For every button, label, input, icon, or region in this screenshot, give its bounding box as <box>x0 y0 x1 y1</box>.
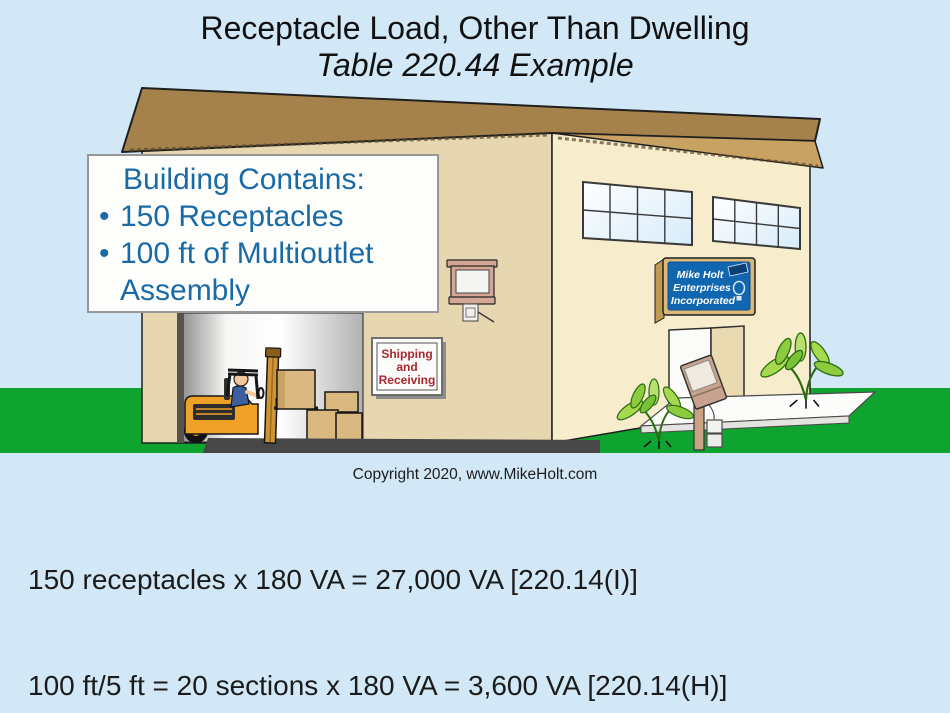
calculation-block: 150 receptacles x 180 VA = 27,000 VA [22… <box>28 492 910 713</box>
bullet-icon: • <box>99 235 120 309</box>
driver-torso <box>231 386 249 407</box>
driveway <box>203 438 600 453</box>
mast-cap <box>266 348 281 358</box>
page-subtitle: Table 220.44 Example <box>0 47 950 84</box>
building-contains-heading: Building Contains: <box>99 161 431 198</box>
small-box <box>707 434 722 447</box>
mike-holt-sign: Mike Holt Enterprises Incorporated <box>655 258 755 323</box>
title-block: Receptacle Load, Other Than Dwelling Tab… <box>0 10 950 84</box>
forklift-grill <box>193 404 235 420</box>
garage-jamb <box>177 313 184 443</box>
list-item: • 150 Receptacles <box>99 198 431 235</box>
building-contains-box: Building Contains: • 150 Receptacles • 1… <box>87 154 439 313</box>
slide: Mike Holt Enterprises Incorporated Ship <box>0 0 950 713</box>
lamp-bottom <box>449 297 495 304</box>
calc-line-multioutlet: 100 ft/5 ft = 20 sections x 180 VA = 3,6… <box>28 668 910 703</box>
shipping-sign-line1: Shipping <box>381 347 432 361</box>
bullet-icon: • <box>99 198 120 235</box>
shipping-sign: Shipping and Receiving <box>372 338 446 399</box>
box <box>336 413 362 440</box>
small-box <box>707 420 722 433</box>
box <box>325 392 358 412</box>
list-item-text: 150 Receptacles <box>120 198 431 235</box>
mike-holt-sign-line3: Incorporated <box>671 295 736 307</box>
box <box>307 410 338 440</box>
list-item: • 100 ft of Multioutlet Assembly <box>99 235 431 309</box>
lamp-bracket <box>463 304 478 321</box>
list-item-text: 100 ft of Multioutlet Assembly <box>120 235 431 309</box>
box-shade <box>278 371 285 408</box>
mike-holt-sign-line1: Mike Holt <box>677 269 724 281</box>
copyright-text: Copyright 2020, www.MikeHolt.com <box>0 466 950 484</box>
shipping-sign-line3: Receiving <box>379 373 436 387</box>
shipping-sign-line2: and <box>396 360 417 374</box>
calc-line-receptacles: 150 receptacles x 180 VA = 27,000 VA [22… <box>28 562 910 597</box>
lamp-lens <box>456 270 489 293</box>
mike-holt-sign-line2: Enterprises <box>673 282 731 294</box>
page-title: Receptacle Load, Other Than Dwelling <box>0 10 950 47</box>
